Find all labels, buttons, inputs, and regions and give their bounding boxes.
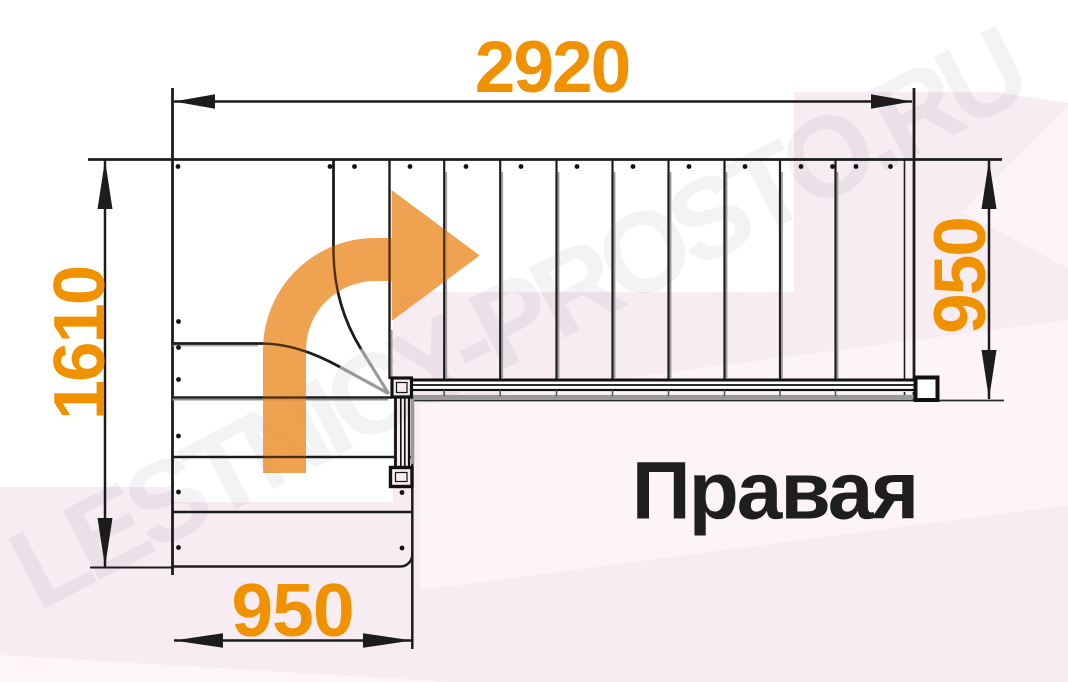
svg-text:Правая: Правая	[632, 446, 917, 537]
svg-text:950: 950	[231, 568, 353, 652]
svg-text:2920: 2920	[475, 27, 629, 108]
svg-text:1610: 1610	[39, 267, 120, 420]
svg-text:950: 950	[920, 218, 1001, 334]
